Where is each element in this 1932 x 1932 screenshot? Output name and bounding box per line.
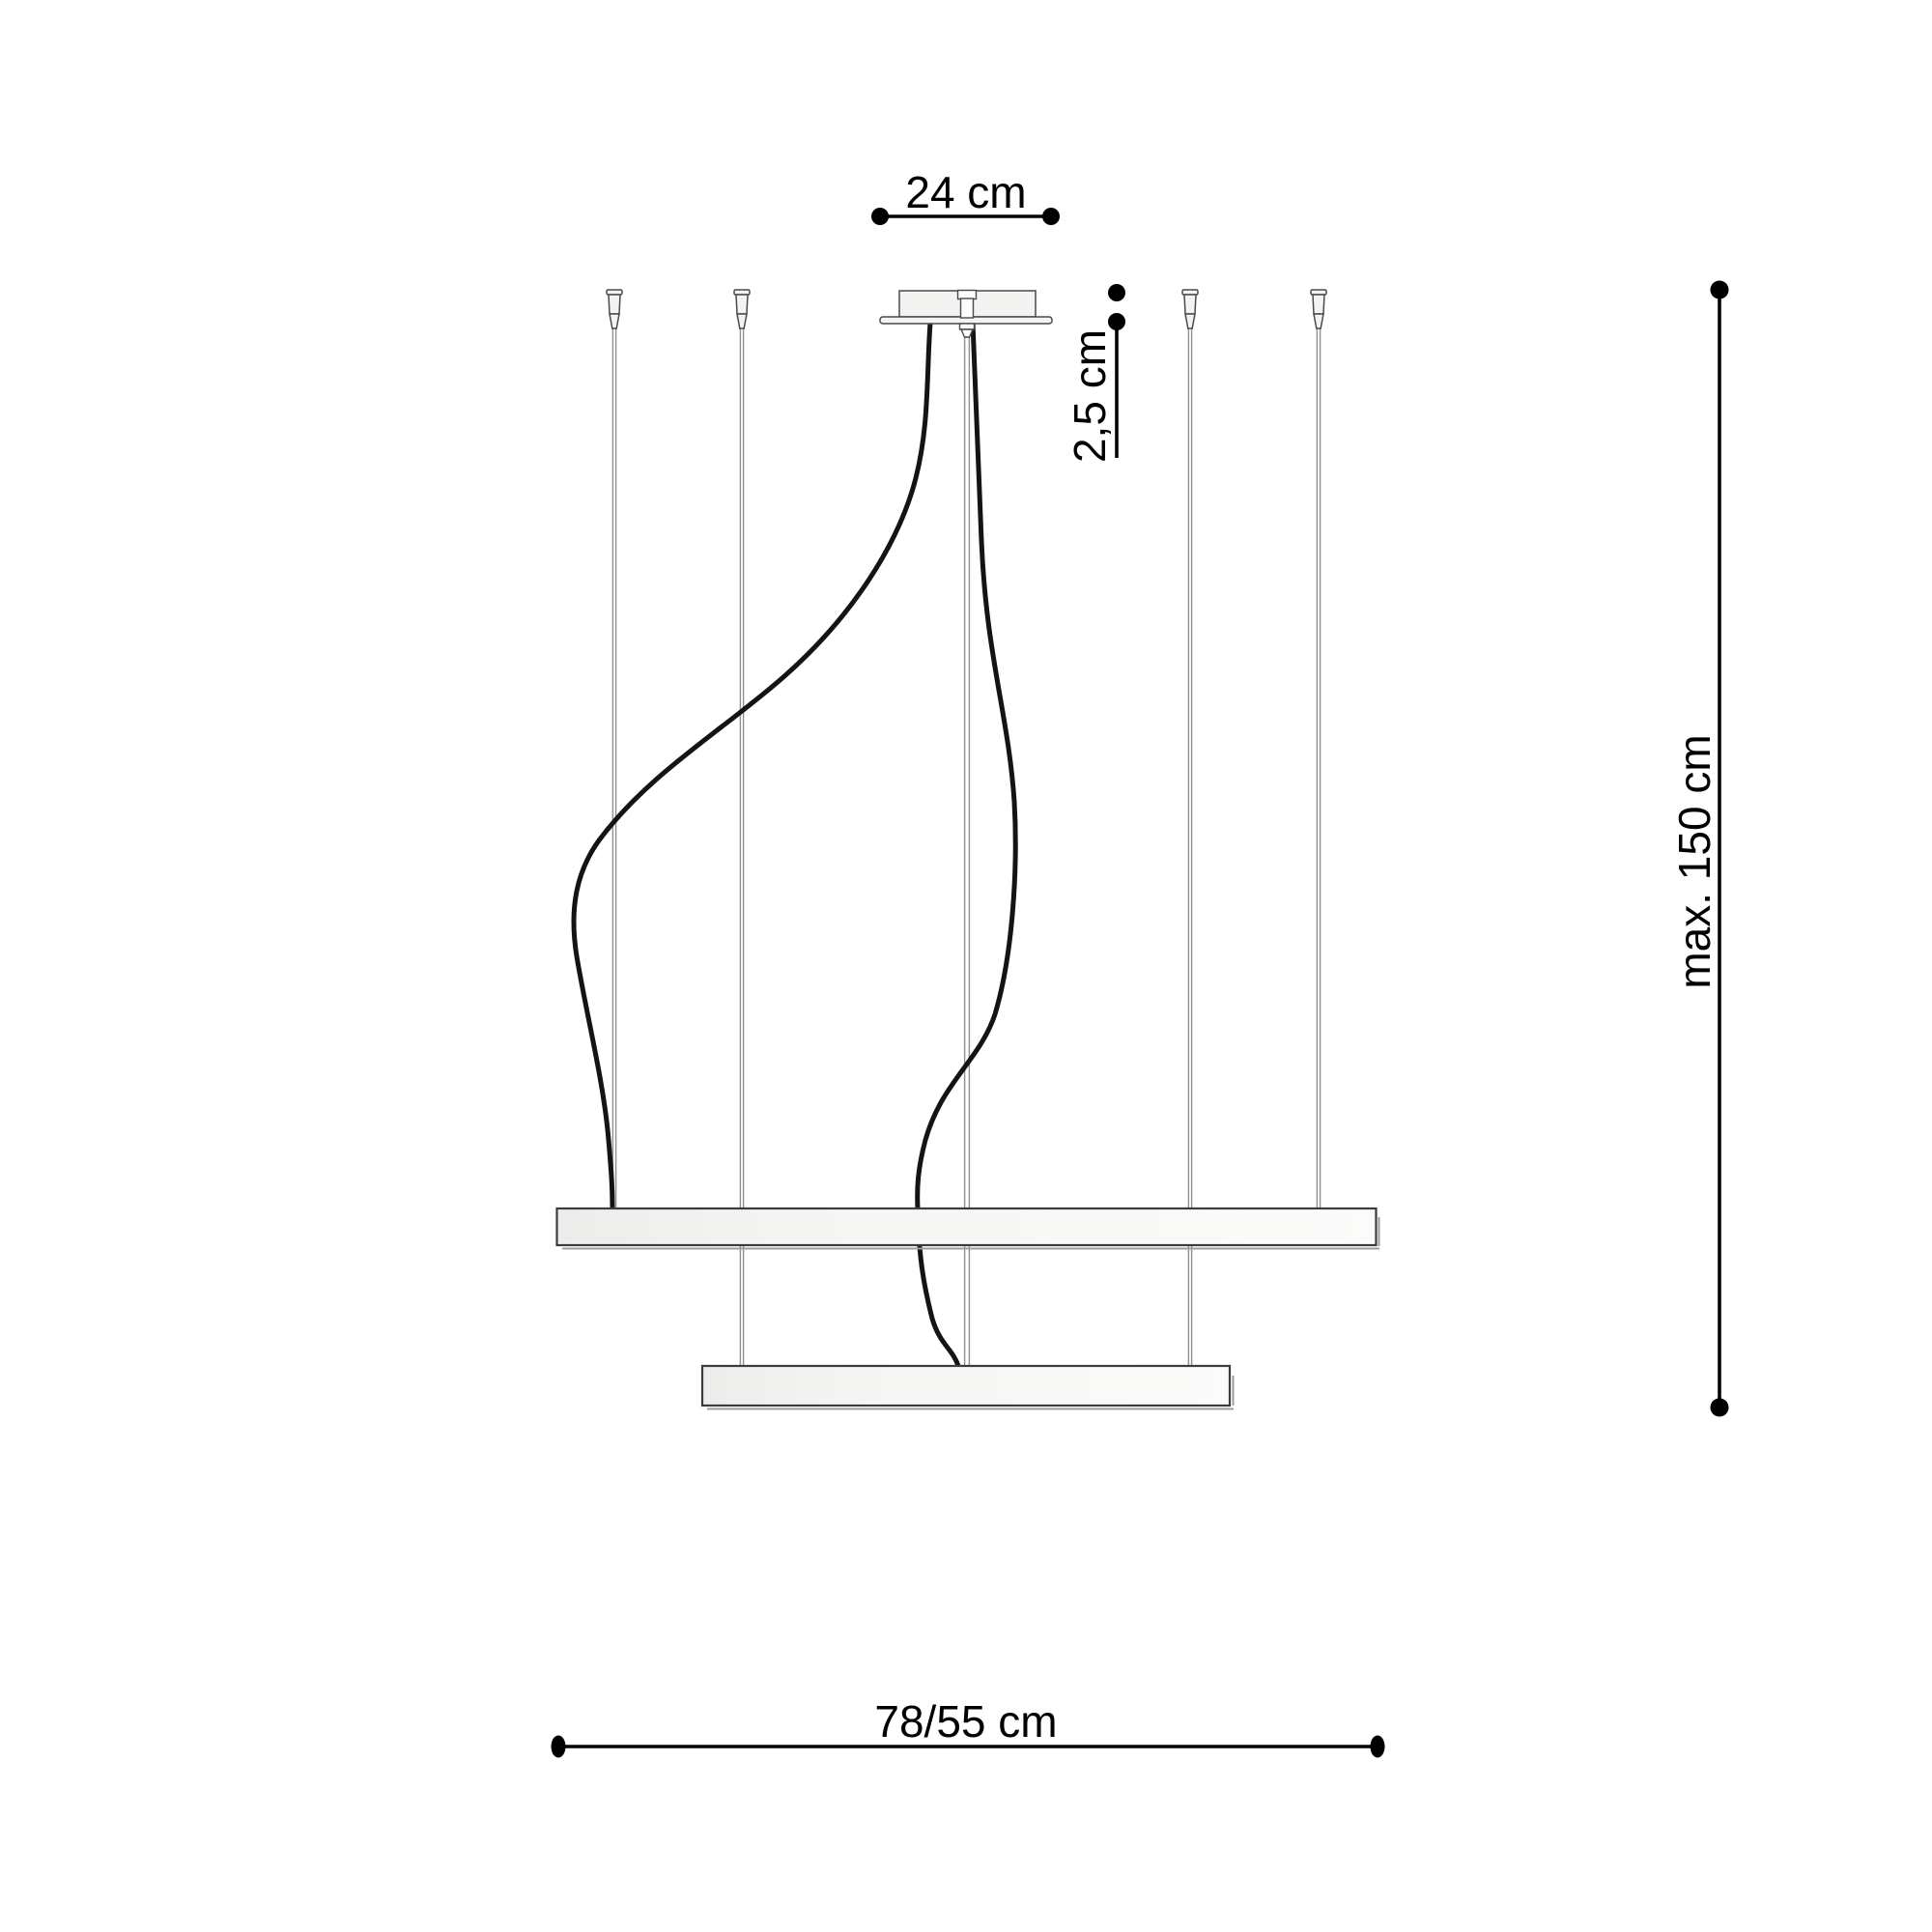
wire-grip <box>734 290 750 328</box>
ring-widths-label: 78/55 cm <box>821 1696 1111 1747</box>
pendant-lamp-drawing <box>0 0 1932 1932</box>
diagram-canvas: 24 cm 2,5 cm max. 150 cm 78/55 cm <box>0 0 1932 1932</box>
wire-grip <box>1311 290 1326 328</box>
canopy-stem-flange <box>958 291 977 299</box>
wire-grip <box>607 290 622 328</box>
canopy-collar <box>960 324 975 329</box>
canopy-stem <box>961 298 974 318</box>
power-cable-left <box>574 323 930 1207</box>
wire-grip <box>1182 290 1198 328</box>
suspension-max-label: max. 150 cm <box>1669 717 1719 1007</box>
upper-ring <box>557 1208 1380 1249</box>
canopy-width-label: 24 cm <box>821 167 1111 217</box>
lower-ring <box>702 1366 1234 1409</box>
canopy-height-label: 2,5 cm <box>1065 299 1115 493</box>
ceiling-canopy <box>880 291 1052 338</box>
